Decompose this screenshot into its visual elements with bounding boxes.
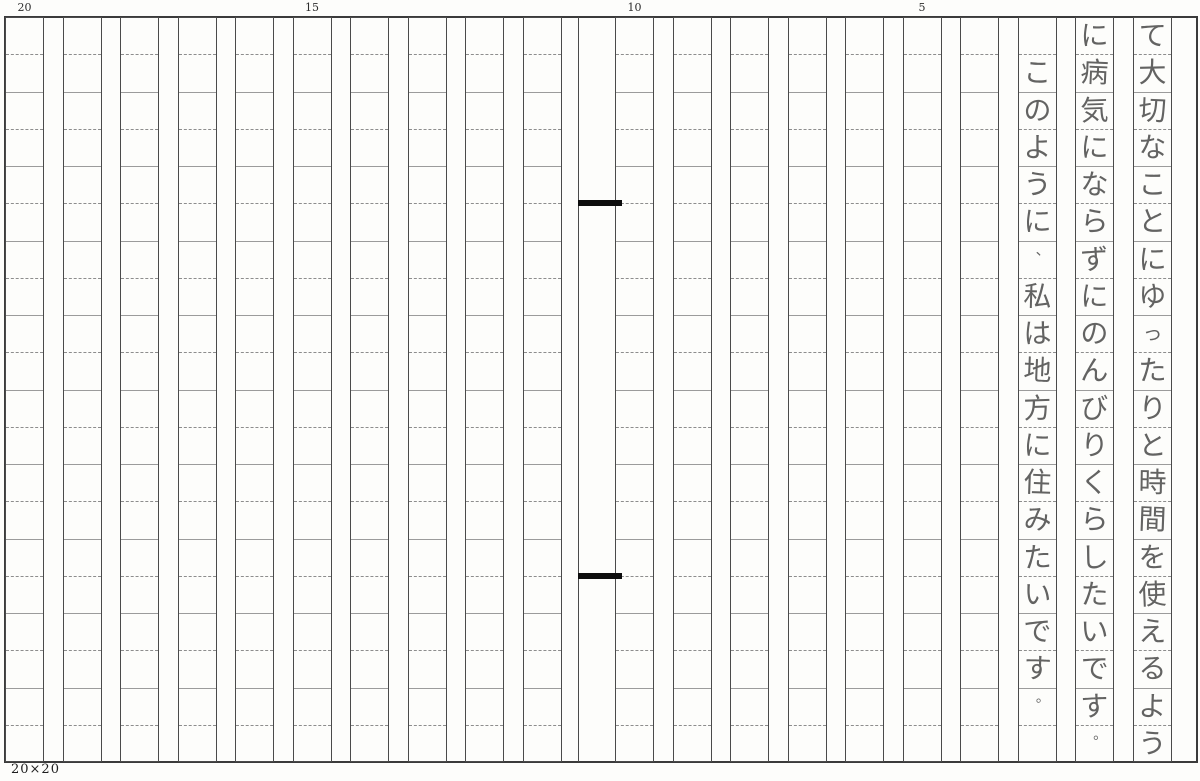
cell-divider xyxy=(294,613,331,614)
cell-divider xyxy=(6,688,43,689)
cell-divider xyxy=(409,352,446,353)
cell-divider xyxy=(121,613,158,614)
cell-divider xyxy=(674,166,711,167)
handwritten-character: と xyxy=(1132,203,1172,241)
cell-divider xyxy=(294,576,331,577)
cell-divider xyxy=(409,725,446,726)
handwritten-character: の xyxy=(1075,315,1115,353)
cell-divider xyxy=(674,501,711,502)
cell-divider xyxy=(64,650,101,651)
cell-divider xyxy=(789,54,826,55)
cell-divider xyxy=(524,501,561,502)
cell-divider xyxy=(121,725,158,726)
grid-column-17 xyxy=(178,17,217,762)
cell-divider xyxy=(674,241,711,242)
cell-divider xyxy=(846,613,883,614)
handwritten-character: 。 xyxy=(1017,687,1057,725)
cell-divider xyxy=(789,278,826,279)
cell-divider xyxy=(616,539,653,540)
cell-divider xyxy=(179,613,216,614)
cell-divider xyxy=(236,539,273,540)
handwritten-character: 気 xyxy=(1074,91,1114,129)
cell-divider xyxy=(789,539,826,540)
cell-divider xyxy=(466,166,503,167)
cell-divider xyxy=(121,650,158,651)
handwritten-character: す xyxy=(1017,649,1058,688)
grid-column-15 xyxy=(293,17,332,762)
cell-divider xyxy=(179,539,216,540)
cell-divider xyxy=(179,464,216,465)
handwritten-character: で xyxy=(1074,649,1115,688)
cell-divider xyxy=(731,390,768,391)
cell-divider xyxy=(904,92,941,93)
cell-divider xyxy=(674,688,711,689)
cell-divider xyxy=(524,576,561,577)
cell-divider xyxy=(466,54,503,55)
cell-divider xyxy=(179,352,216,353)
grid-column-14 xyxy=(350,17,389,762)
cell-divider xyxy=(6,352,43,353)
cell-divider xyxy=(524,54,561,55)
cell-divider xyxy=(351,203,388,204)
cell-divider xyxy=(961,166,998,167)
handwritten-character: に xyxy=(1074,277,1114,315)
handwritten-character: 間 xyxy=(1132,501,1172,539)
column-number-label-20: 20 xyxy=(18,1,32,14)
cell-divider xyxy=(409,464,446,465)
cell-divider xyxy=(236,241,273,242)
cell-divider xyxy=(674,427,711,428)
cell-divider xyxy=(6,129,43,130)
cell-divider xyxy=(466,688,503,689)
cell-divider xyxy=(731,92,768,93)
cell-divider xyxy=(6,92,43,93)
cell-divider xyxy=(466,203,503,204)
cell-divider xyxy=(961,390,998,391)
cell-divider xyxy=(294,352,331,353)
cell-divider xyxy=(409,501,446,502)
cell-divider xyxy=(846,650,883,651)
cell-divider xyxy=(789,427,826,428)
cell-divider xyxy=(846,54,883,55)
cell-divider xyxy=(904,501,941,502)
cell-divider xyxy=(674,725,711,726)
handwritten-character: り xyxy=(1132,389,1173,428)
cell-divider xyxy=(961,92,998,93)
cell-divider xyxy=(294,129,331,130)
cell-divider xyxy=(121,539,158,540)
cell-divider xyxy=(466,92,503,93)
cell-divider xyxy=(904,352,941,353)
cell-divider xyxy=(961,501,998,502)
cell-divider xyxy=(236,613,273,614)
cell-divider xyxy=(64,315,101,316)
cell-divider xyxy=(64,613,101,614)
handwritten-character: う xyxy=(1132,724,1172,762)
cell-divider xyxy=(674,613,711,614)
cell-divider xyxy=(6,203,43,204)
cell-divider xyxy=(524,427,561,428)
cell-divider xyxy=(846,129,883,130)
handwritten-character: 時 xyxy=(1132,464,1172,502)
handwritten-character: 。 xyxy=(1075,724,1115,762)
cell-divider xyxy=(846,203,883,204)
cell-divider xyxy=(846,352,883,353)
cell-divider xyxy=(409,539,446,540)
cell-divider xyxy=(731,203,768,204)
handwritten-character: こ xyxy=(1017,53,1058,92)
handwritten-character: い xyxy=(1075,613,1115,651)
cell-divider xyxy=(524,203,561,204)
cell-divider xyxy=(731,464,768,465)
handwritten-character: を xyxy=(1132,538,1171,575)
cell-divider xyxy=(409,613,446,614)
cell-divider xyxy=(961,576,998,577)
cell-divider xyxy=(524,539,561,540)
grid-column-19 xyxy=(63,17,102,762)
cell-divider xyxy=(121,688,158,689)
cell-divider xyxy=(616,129,653,130)
cell-divider xyxy=(409,390,446,391)
cell-divider xyxy=(524,278,561,279)
cell-divider xyxy=(351,427,388,428)
cell-divider xyxy=(351,464,388,465)
handwritten-character: る xyxy=(1132,650,1172,688)
handwritten-character: 方 xyxy=(1017,389,1057,427)
cell-divider xyxy=(731,129,768,130)
cell-divider xyxy=(351,390,388,391)
handwritten-character: に xyxy=(1017,203,1056,240)
cell-divider xyxy=(294,725,331,726)
cell-divider xyxy=(961,54,998,55)
cell-divider xyxy=(6,390,43,391)
cell-divider xyxy=(409,688,446,689)
cell-divider xyxy=(236,54,273,55)
cell-divider xyxy=(121,390,158,391)
cell-divider xyxy=(731,352,768,353)
cell-divider xyxy=(846,688,883,689)
cell-divider xyxy=(236,464,273,465)
cell-divider xyxy=(236,650,273,651)
handwritten-character: 病 xyxy=(1074,53,1115,92)
cell-divider xyxy=(616,464,653,465)
cell-divider xyxy=(351,278,388,279)
grid-column-16 xyxy=(235,17,274,762)
cell-divider xyxy=(524,352,561,353)
cell-divider xyxy=(236,166,273,167)
cell-divider xyxy=(351,352,388,353)
paper-size-label: 20×20 xyxy=(11,762,60,777)
cell-divider xyxy=(904,613,941,614)
cell-divider xyxy=(64,166,101,167)
cell-divider xyxy=(961,688,998,689)
cell-divider xyxy=(64,129,101,130)
grid-column-10 xyxy=(615,17,654,762)
cell-divider xyxy=(466,390,503,391)
cell-divider xyxy=(6,725,43,726)
cell-divider xyxy=(846,278,883,279)
cell-divider xyxy=(351,92,388,93)
cell-divider xyxy=(64,390,101,391)
cell-divider xyxy=(121,352,158,353)
cell-divider xyxy=(789,241,826,242)
cell-divider xyxy=(846,427,883,428)
cell-divider xyxy=(904,166,941,167)
cell-divider xyxy=(846,539,883,540)
cell-divider xyxy=(524,315,561,316)
cell-divider xyxy=(294,427,331,428)
cell-divider xyxy=(351,241,388,242)
cell-divider xyxy=(961,725,998,726)
cell-divider xyxy=(904,203,941,204)
cell-divider xyxy=(904,539,941,540)
cell-divider xyxy=(731,688,768,689)
handwritten-character: 、 xyxy=(1017,240,1058,279)
cell-divider xyxy=(121,241,158,242)
handwritten-character: に xyxy=(1132,240,1171,277)
cell-divider xyxy=(351,501,388,502)
cell-divider xyxy=(121,427,158,428)
cell-divider xyxy=(904,427,941,428)
cell-divider xyxy=(409,203,446,204)
cell-divider xyxy=(674,576,711,577)
grid-column-4 xyxy=(960,17,999,762)
cell-divider xyxy=(179,688,216,689)
cell-divider xyxy=(731,278,768,279)
cell-divider xyxy=(904,725,941,726)
cell-divider xyxy=(236,725,273,726)
cell-divider xyxy=(674,278,711,279)
cell-divider xyxy=(6,315,43,316)
cell-divider xyxy=(789,725,826,726)
cell-divider xyxy=(961,650,998,651)
binding-mark xyxy=(578,200,622,206)
cell-divider xyxy=(904,576,941,577)
cell-divider xyxy=(121,54,158,55)
handwritten-character: び xyxy=(1074,389,1114,427)
cell-divider xyxy=(789,315,826,316)
cell-divider xyxy=(236,390,273,391)
column-number-label-10: 10 xyxy=(628,1,642,14)
cell-divider xyxy=(789,203,826,204)
cell-divider xyxy=(6,166,43,167)
cell-divider xyxy=(64,539,101,540)
cell-divider xyxy=(466,315,503,316)
cell-divider xyxy=(236,203,273,204)
cell-divider xyxy=(6,650,43,651)
handwritten-character: こ xyxy=(1132,166,1172,204)
cell-divider xyxy=(846,166,883,167)
cell-divider xyxy=(731,241,768,242)
cell-divider xyxy=(731,501,768,502)
cell-divider xyxy=(409,278,446,279)
handwritten-character: ら xyxy=(1075,203,1114,240)
cell-divider xyxy=(616,688,653,689)
column-number-label-5: 5 xyxy=(919,1,926,14)
cell-divider xyxy=(294,688,331,689)
cell-divider xyxy=(351,129,388,130)
cell-divider xyxy=(789,576,826,577)
cell-divider xyxy=(179,501,216,502)
cell-divider xyxy=(674,464,711,465)
handwritten-character: よ xyxy=(1132,687,1173,726)
cell-divider xyxy=(121,92,158,93)
cell-divider xyxy=(789,501,826,502)
cell-divider xyxy=(236,427,273,428)
handwritten-character: い xyxy=(1017,575,1057,613)
grid-column-9 xyxy=(673,17,712,762)
grid-column-20 xyxy=(5,17,44,762)
cell-divider xyxy=(524,650,561,651)
handwritten-character: 住 xyxy=(1017,463,1057,501)
cell-divider xyxy=(731,650,768,651)
cell-divider xyxy=(524,92,561,93)
cell-divider xyxy=(236,129,273,130)
cell-divider xyxy=(294,501,331,502)
cell-divider xyxy=(674,203,711,204)
grid-column-5 xyxy=(903,17,942,762)
cell-divider xyxy=(121,464,158,465)
cell-divider xyxy=(904,241,941,242)
cell-divider xyxy=(236,688,273,689)
cell-divider xyxy=(351,315,388,316)
handwritten-character: な xyxy=(1074,165,1114,203)
cell-divider xyxy=(731,166,768,167)
cell-divider xyxy=(674,92,711,93)
cell-divider xyxy=(789,688,826,689)
cell-divider xyxy=(789,390,826,391)
cell-divider xyxy=(789,464,826,465)
cell-divider xyxy=(466,725,503,726)
cell-divider xyxy=(294,54,331,55)
cell-divider xyxy=(616,613,653,614)
cell-divider xyxy=(731,725,768,726)
cell-divider xyxy=(961,278,998,279)
cell-divider xyxy=(236,501,273,502)
cell-divider xyxy=(6,613,43,614)
cell-divider xyxy=(674,315,711,316)
handwritten-character: よ xyxy=(1017,128,1057,166)
cell-divider xyxy=(6,241,43,242)
cell-divider xyxy=(64,203,101,204)
grid-column-7 xyxy=(788,17,827,762)
cell-divider xyxy=(961,613,998,614)
grid-column-12 xyxy=(465,17,504,762)
handwritten-character: ゆ xyxy=(1132,277,1173,316)
cell-divider xyxy=(179,576,216,577)
cell-divider xyxy=(466,241,503,242)
cell-divider xyxy=(294,241,331,242)
cell-divider xyxy=(64,501,101,502)
cell-divider xyxy=(409,166,446,167)
grid-column-18 xyxy=(120,17,159,762)
handwritten-character: な xyxy=(1132,128,1172,166)
cell-divider xyxy=(64,688,101,689)
cell-divider xyxy=(961,203,998,204)
cell-divider xyxy=(789,166,826,167)
cell-divider xyxy=(616,166,653,167)
cell-divider xyxy=(466,539,503,540)
manuscript-paper-scan: 2015105 て大切なことにゆったりと時間を使えるように病気にならずにのんびり… xyxy=(0,0,1200,781)
cell-divider xyxy=(961,539,998,540)
cell-divider xyxy=(6,539,43,540)
cell-divider xyxy=(179,427,216,428)
cell-divider xyxy=(121,129,158,130)
cell-divider xyxy=(6,576,43,577)
cell-divider xyxy=(846,501,883,502)
cell-divider xyxy=(904,688,941,689)
cell-divider xyxy=(236,315,273,316)
cell-divider xyxy=(524,613,561,614)
handwritten-character: た xyxy=(1132,352,1172,390)
cell-divider xyxy=(904,54,941,55)
cell-divider xyxy=(616,725,653,726)
cell-divider xyxy=(616,352,653,353)
cell-divider xyxy=(179,390,216,391)
cell-divider xyxy=(294,464,331,465)
cell-divider xyxy=(121,501,158,502)
cell-divider xyxy=(64,241,101,242)
cell-divider xyxy=(466,464,503,465)
handwritten-character: に xyxy=(1075,128,1115,166)
cell-divider xyxy=(294,539,331,540)
cell-divider xyxy=(674,650,711,651)
cell-divider xyxy=(6,278,43,279)
cell-divider xyxy=(674,54,711,55)
cell-divider xyxy=(961,464,998,465)
cell-divider xyxy=(64,352,101,353)
cell-divider xyxy=(466,613,503,614)
cell-divider xyxy=(466,129,503,130)
cell-divider xyxy=(846,725,883,726)
cell-divider xyxy=(466,278,503,279)
cell-divider xyxy=(789,613,826,614)
cell-divider xyxy=(731,315,768,316)
center-gutter xyxy=(578,17,616,762)
cell-divider xyxy=(294,92,331,93)
cell-divider xyxy=(789,650,826,651)
cell-divider xyxy=(789,92,826,93)
cell-divider xyxy=(616,427,653,428)
cell-divider xyxy=(674,390,711,391)
cell-divider xyxy=(294,650,331,651)
cell-divider xyxy=(179,203,216,204)
handwritten-character: 大 xyxy=(1132,54,1172,92)
cell-divider xyxy=(731,576,768,577)
cell-divider xyxy=(846,390,883,391)
cell-divider xyxy=(121,166,158,167)
cell-divider xyxy=(64,464,101,465)
cell-divider xyxy=(789,129,826,130)
cell-divider xyxy=(616,278,653,279)
handwritten-character: の xyxy=(1017,91,1057,129)
cell-divider xyxy=(6,501,43,502)
handwritten-character: と xyxy=(1132,426,1172,464)
handwritten-character: し xyxy=(1074,538,1115,577)
cell-divider xyxy=(961,129,998,130)
cell-divider xyxy=(846,315,883,316)
cell-divider xyxy=(904,129,941,130)
handwritten-character: ん xyxy=(1074,351,1115,390)
cell-divider xyxy=(6,464,43,465)
handwritten-character: り xyxy=(1075,426,1115,464)
handwritten-character: に xyxy=(1075,17,1115,55)
cell-divider xyxy=(524,390,561,391)
cell-divider xyxy=(616,315,653,316)
cell-divider xyxy=(409,92,446,93)
handwritten-character: 切 xyxy=(1132,91,1173,130)
cell-divider xyxy=(616,54,653,55)
